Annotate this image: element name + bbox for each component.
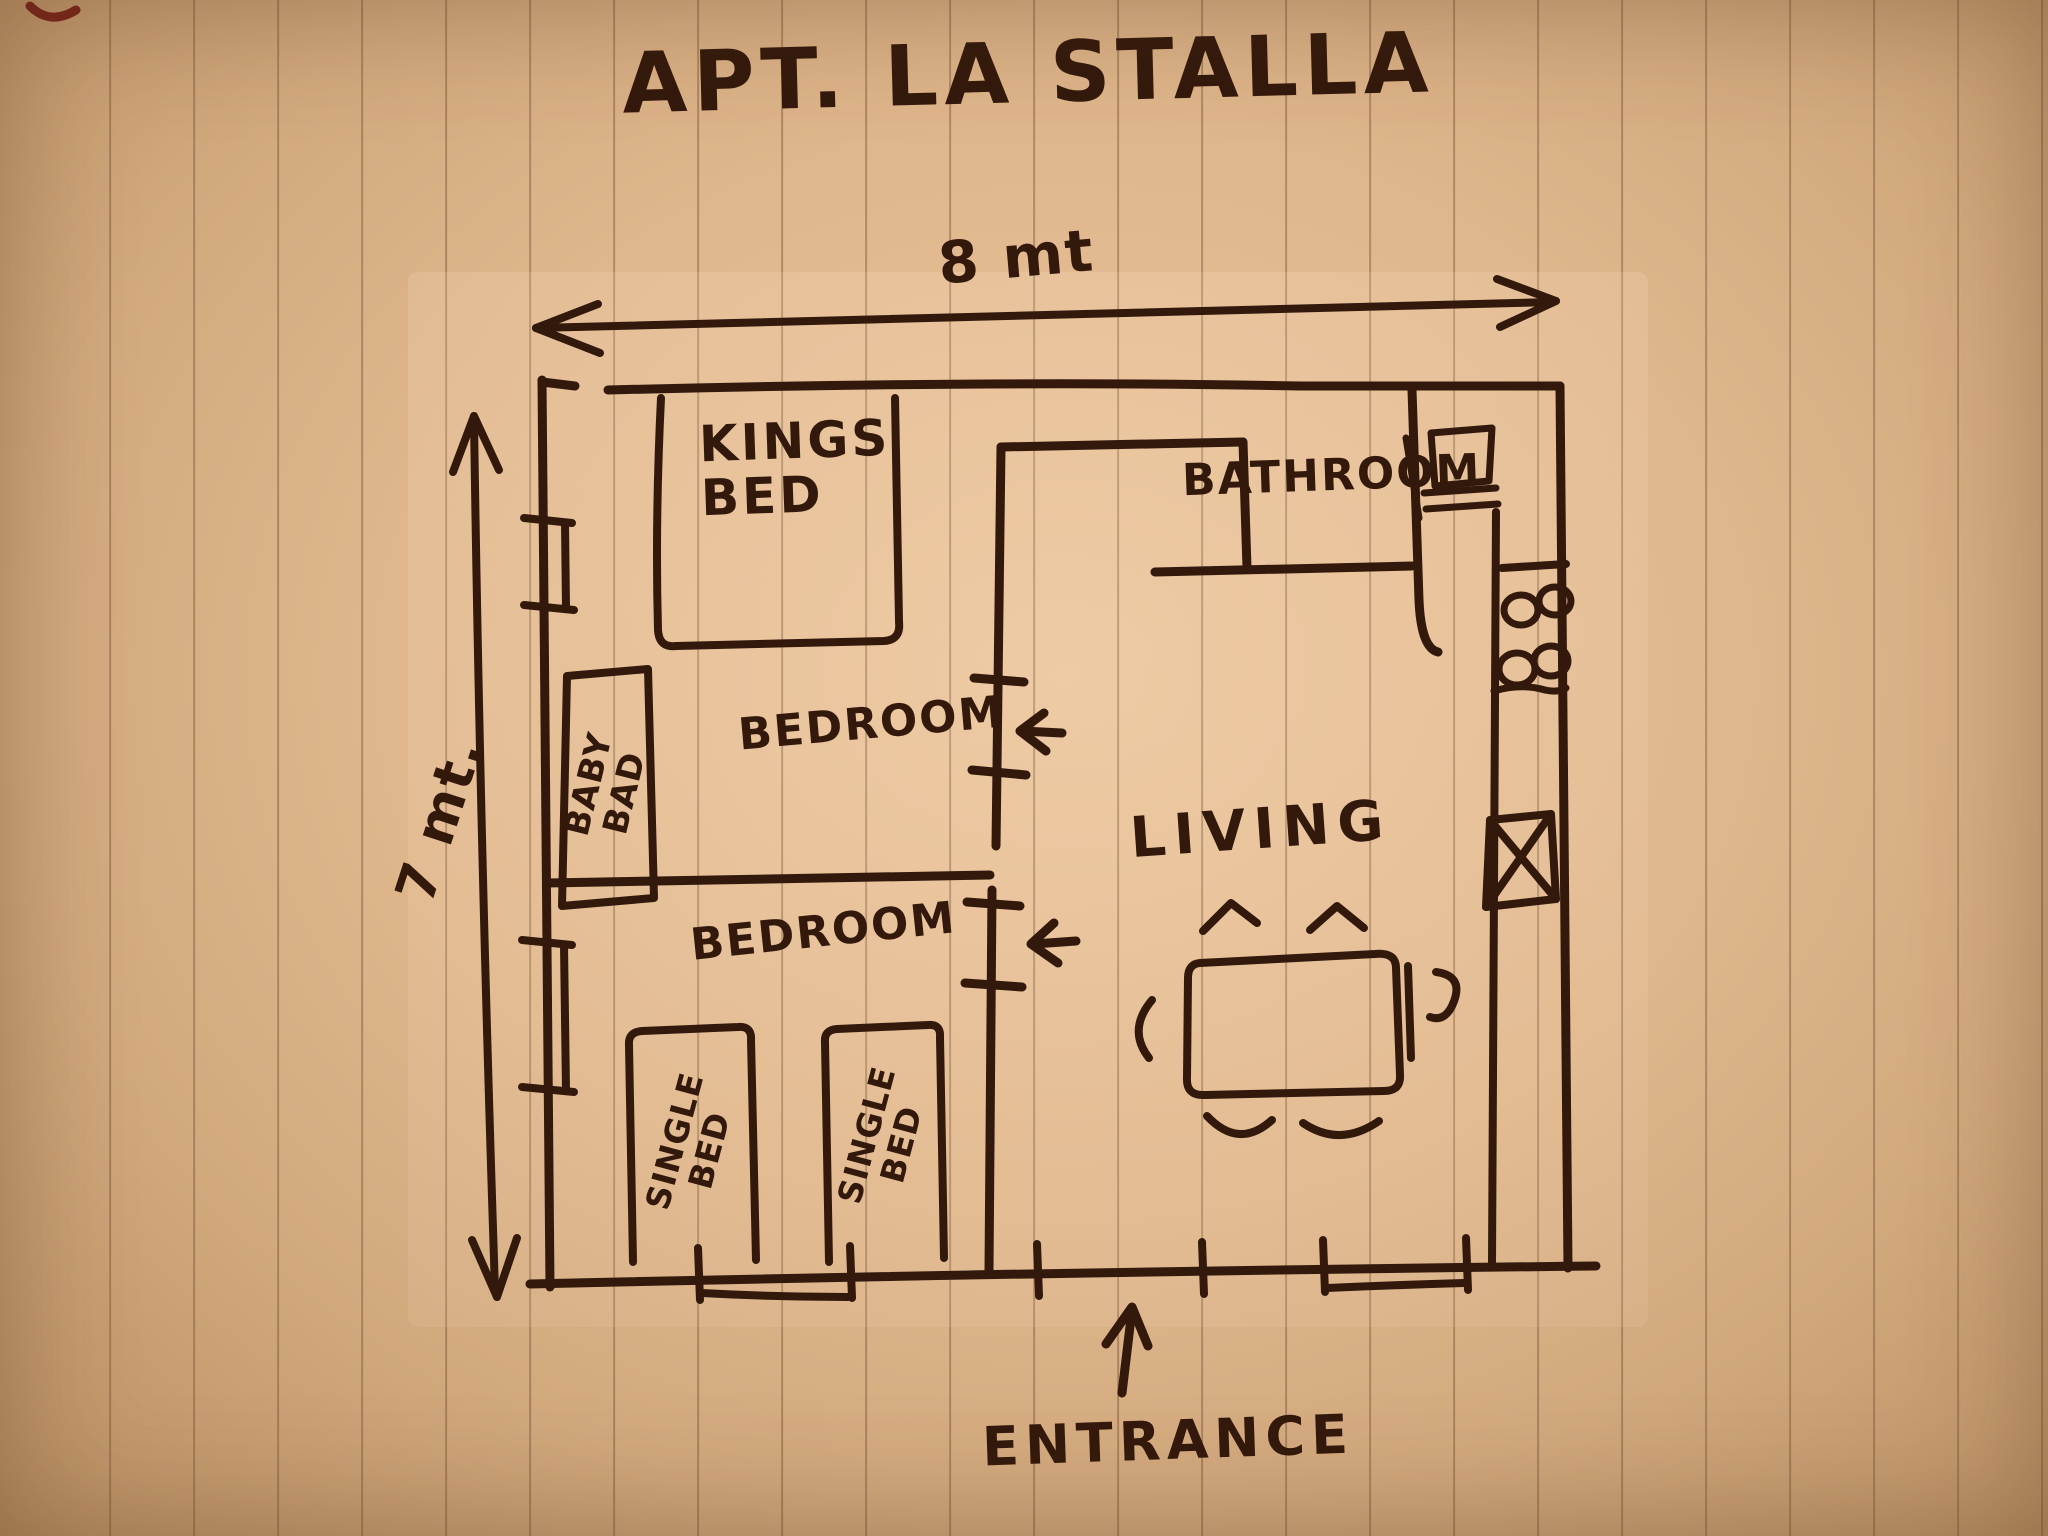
sketch-title: APT. LA STALLA: [621, 17, 1436, 129]
bathroom-bottom-wall: [1155, 566, 1412, 572]
interior-wall-lower: [989, 890, 992, 1270]
kings-bed-label-line1: KINGS: [698, 411, 891, 472]
chair-right-icon: [1430, 972, 1456, 1018]
bedroom-divider-wall: [548, 875, 990, 883]
left-window-upper: [524, 518, 574, 610]
chair-bottom-left-icon: [1207, 1116, 1272, 1134]
door-lower-icon: [965, 902, 1076, 987]
chair-left-icon: [1139, 1000, 1152, 1058]
top-wall: [608, 384, 1560, 390]
hall-wall-horizontal: [1001, 442, 1243, 447]
bathroom-bottom-wall-right: [1502, 564, 1566, 568]
bottom-window-lines: [702, 1283, 1464, 1297]
entrance-arrow-icon: [1106, 1307, 1148, 1393]
interior-wall-upper: [996, 447, 1001, 846]
width-dimension-arrow: [536, 279, 1556, 353]
right-wall: [1560, 386, 1568, 1268]
top-wall-stub: [542, 382, 575, 386]
bathroom-label: BATHROOM: [1181, 447, 1482, 505]
width-dimension-label: 8 mt: [936, 219, 1098, 295]
chair-top-right-icon: [1310, 906, 1364, 930]
kings-bed-label: KINGS BED: [698, 411, 893, 526]
chair-right-back-icon: [1408, 966, 1411, 1058]
red-corner-mark: [30, 6, 76, 17]
photo-of-sketch: APT. LA STALLA 8 mt 7 mt. KINGS BED BATH…: [0, 0, 2048, 1536]
chair-bottom-right-icon: [1303, 1121, 1379, 1135]
height-dimension-arrow: [453, 416, 517, 1297]
entrance-label: ENTRANCE: [981, 1406, 1355, 1477]
chair-top-left-icon: [1203, 903, 1257, 931]
dining-table-outline: [1187, 954, 1400, 1095]
kings-bed-label-line2: BED: [700, 465, 893, 526]
